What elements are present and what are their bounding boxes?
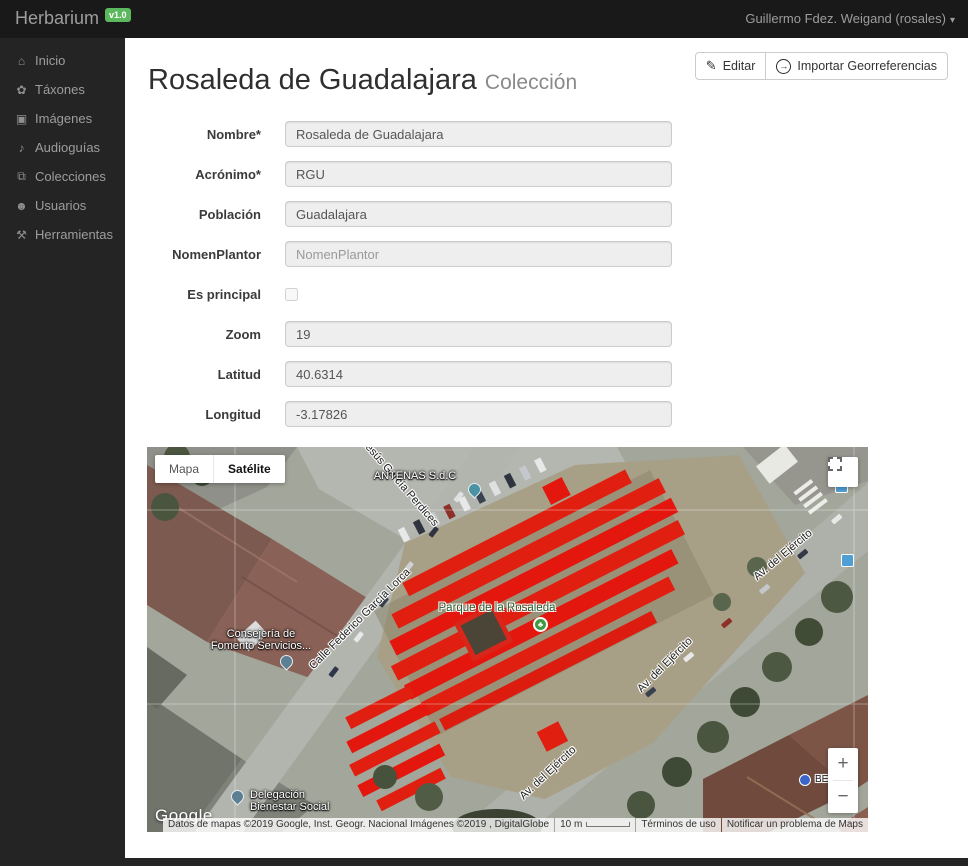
sidebar-item-label: Imágenes: [35, 111, 92, 126]
field-label: Acrónimo*: [148, 167, 261, 182]
sidebar-item-label: Colecciones: [35, 169, 106, 184]
sidebar-item-label: Herramientas: [35, 227, 113, 242]
poi-label-parque-rosaleda: Parque de la Rosaleda: [439, 602, 556, 614]
map-attribution-bar: Datos de mapas ©2019 Google, Inst. Geogr…: [163, 818, 868, 832]
poi-label-delegacion: Delegación Bienestar Social: [250, 789, 330, 813]
poi-label-consejeria: Consejería de Fomento Servicios...: [211, 628, 311, 652]
poi-label-line: Delegación: [250, 789, 330, 801]
report-problem-link[interactable]: Notificar un problema de Maps: [722, 818, 868, 832]
es-principal-checkbox: [285, 288, 298, 301]
users-icon: ☻: [13, 199, 30, 213]
form-row-es-principal: Es principal: [148, 281, 672, 307]
brand-text: Herbarium: [15, 8, 99, 28]
field-label: Es principal: [148, 287, 261, 302]
poi-label-line: Fomento Servicios...: [211, 640, 311, 652]
action-button-group: ✎ Editar → Importar Georreferencias: [695, 52, 948, 80]
edit-button[interactable]: ✎ Editar: [695, 52, 767, 80]
poi-label-line: Consejería de: [211, 628, 311, 640]
fullscreen-corners-icon: [828, 457, 842, 471]
transit-stop-icon[interactable]: [799, 774, 811, 786]
home-icon: ⌂: [13, 54, 30, 68]
map-scale-text: 10 m: [560, 819, 582, 830]
transit-stop-label: BE: [815, 774, 828, 785]
terms-of-use-link[interactable]: Términos de uso: [636, 818, 720, 832]
map-zoom-control: + −: [828, 748, 858, 813]
sidebar-item-audioguias[interactable]: ♪ Audioguías: [0, 133, 125, 162]
latitud-field: [285, 361, 672, 387]
sidebar-item-taxones[interactable]: ✿ Táxones: [0, 75, 125, 104]
nombre-field: [285, 121, 672, 147]
form-row-nombre: Nombre*: [148, 121, 672, 147]
park-tree-marker[interactable]: ♣: [533, 617, 548, 632]
sidebar-item-label: Inicio: [35, 53, 65, 68]
form-row-poblacion: Población: [148, 201, 672, 227]
edit-pencil-icon: ✎: [706, 58, 717, 74]
bus-stop-icon[interactable]: [841, 554, 854, 567]
map-data-attribution: Datos de mapas ©2019 Google, Inst. Geogr…: [163, 818, 554, 832]
field-label: Longitud: [148, 407, 261, 422]
poi-label-line: Bienestar Social: [250, 801, 330, 813]
form-row-zoom: Zoom: [148, 321, 672, 347]
poi-label-antenas: ANTENAS S.d.C: [374, 470, 457, 482]
top-navbar: Herbariumv1.0 Guillermo Fdez. Weigand (r…: [0, 0, 968, 38]
sidebar-item-colecciones[interactable]: ⧉ Colecciones: [0, 162, 125, 191]
page-title: Rosaleda de GuadalajaraColección: [148, 64, 577, 97]
zoom-in-button[interactable]: +: [828, 748, 858, 780]
poblacion-field: [285, 201, 672, 227]
longitud-field: [285, 401, 672, 427]
page-subtitle: Colección: [485, 71, 577, 94]
map-type-satellite-button[interactable]: Satélite: [213, 455, 285, 483]
version-badge: v1.0: [105, 8, 131, 22]
map-scale-control: 10 m: [555, 818, 635, 832]
main-content: ✎ Editar → Importar Georreferencias Rosa…: [125, 38, 968, 858]
zoom-field: [285, 321, 672, 347]
sidebar-item-label: Usuarios: [35, 198, 86, 213]
form-row-acronimo: Acrónimo*: [148, 161, 672, 187]
sidebar-nav: ⌂ Inicio ✿ Táxones ▣ Imágenes ♪ Audioguí…: [0, 38, 125, 866]
zoom-out-button[interactable]: −: [828, 781, 858, 813]
sidebar-item-label: Audioguías: [35, 140, 100, 155]
sidebar-item-herramientas[interactable]: ⚒ Herramientas: [0, 220, 125, 249]
edit-button-label: Editar: [723, 59, 756, 73]
sidebar-item-label: Táxones: [35, 82, 85, 97]
user-name: Guillermo Fdez. Weigand (rosales): [745, 11, 946, 26]
sidebar-item-inicio[interactable]: ⌂ Inicio: [0, 46, 125, 75]
import-circle-arrow-icon: →: [776, 59, 791, 74]
audio-guide-icon: ♪: [13, 141, 30, 155]
collection-form: Nombre* Acrónimo* Población NomenPlantor…: [148, 121, 672, 441]
acronimo-field: [285, 161, 672, 187]
map-type-control: Mapa Satélite: [155, 455, 285, 483]
field-label: NomenPlantor: [148, 247, 261, 262]
field-label: Nombre*: [148, 127, 261, 142]
fullscreen-button[interactable]: [828, 457, 858, 487]
import-georeferences-button[interactable]: → Importar Georreferencias: [765, 52, 948, 80]
app-brand[interactable]: Herbariumv1.0: [15, 8, 131, 29]
user-menu[interactable]: Guillermo Fdez. Weigand (rosales)▾: [745, 11, 955, 26]
collection-name-heading: Rosaleda de Guadalajara: [148, 64, 477, 96]
field-label: Zoom: [148, 327, 261, 342]
image-icon: ▣: [13, 112, 30, 126]
map-type-map-button[interactable]: Mapa: [155, 455, 213, 483]
field-label: Latitud: [148, 367, 261, 382]
sidebar-item-usuarios[interactable]: ☻ Usuarios: [0, 191, 125, 220]
google-map-satellite-view[interactable]: Jesús García Perdices Calle Federico Gar…: [147, 447, 868, 832]
form-row-longitud: Longitud: [148, 401, 672, 427]
plant-icon: ✿: [13, 83, 30, 97]
map-scale-bar-icon: [586, 822, 630, 827]
sidebar-item-imagenes[interactable]: ▣ Imágenes: [0, 104, 125, 133]
import-button-label: Importar Georreferencias: [797, 59, 937, 73]
field-label: Población: [148, 207, 261, 222]
collections-icon: ⧉: [13, 169, 30, 184]
form-row-nomenplantor: NomenPlantor: [148, 241, 672, 267]
form-row-latitud: Latitud: [148, 361, 672, 387]
caret-down-icon: ▾: [950, 15, 955, 26]
nomenplantor-field: [285, 241, 672, 267]
tools-icon: ⚒: [13, 228, 30, 242]
